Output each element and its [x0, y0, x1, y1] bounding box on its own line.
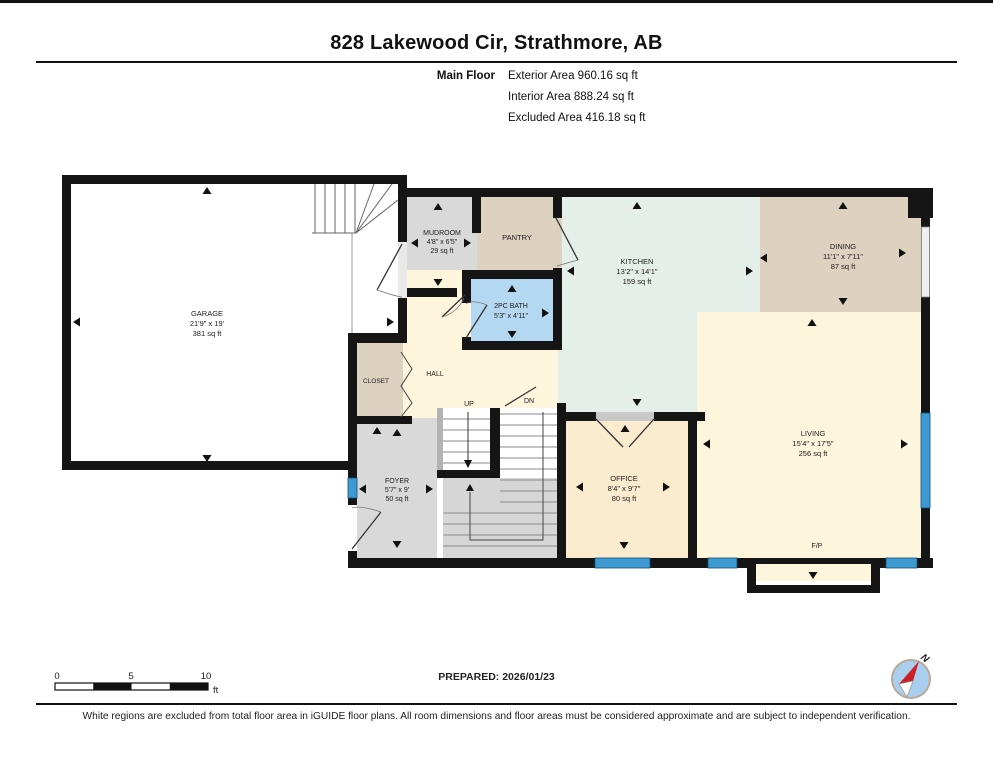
living-area: 256 sq ft	[799, 449, 829, 458]
kitchen-label: KITCHEN	[621, 257, 654, 266]
wall	[348, 416, 412, 424]
footer-divider	[36, 703, 957, 705]
office-door-header	[596, 412, 654, 421]
kitchen-dims: 13'2" x 14'1"	[616, 267, 657, 276]
pantry-label: PANTRY	[502, 233, 532, 242]
scale-unit: ft	[213, 685, 219, 696]
wall	[398, 298, 407, 343]
dining-label: DINING	[830, 242, 856, 251]
wall	[62, 175, 407, 184]
mudroom-label: MUDROOM	[423, 230, 461, 237]
wall	[557, 403, 566, 558]
room-kitchen	[558, 193, 760, 312]
garage-label: GARAGE	[191, 309, 223, 318]
wall	[654, 412, 705, 421]
wall	[62, 461, 357, 470]
room-fills	[66, 179, 923, 558]
mudroom-dims: 4'8" x 6'5"	[427, 239, 458, 246]
office-label: OFFICE	[610, 474, 638, 483]
wall	[62, 175, 71, 470]
wall	[407, 288, 457, 297]
kitchen-area: 159 sq ft	[623, 277, 653, 286]
bath-label: 2PC BATH	[494, 303, 528, 310]
foyer-area: 50 sq ft	[386, 496, 409, 503]
floorplan-drawing: GARAGE 21'9" x 19' 381 sq ft MUDROOM 4'8…	[0, 0, 993, 768]
wall	[472, 188, 481, 233]
foyer-label: FOYER	[385, 478, 409, 485]
mudroom-area: 29 sq ft	[431, 248, 454, 255]
fireplace-label: F/P	[812, 543, 823, 550]
door-gap-garage-mudroom	[398, 242, 407, 298]
wall	[562, 412, 596, 421]
window	[886, 558, 917, 568]
wall	[553, 268, 562, 350]
wall	[462, 270, 471, 303]
prepared-date: PREPARED: 2026/01/23	[0, 671, 993, 683]
stairs-up-label: UP	[464, 401, 474, 408]
hall-label: HALL	[426, 371, 444, 378]
dining-dims: 11'1" x 7'11"	[823, 252, 863, 261]
window	[921, 413, 930, 508]
wall	[553, 188, 562, 218]
living-dims: 15'4" x 17'5"	[792, 439, 833, 448]
dining-area: 87 sq ft	[831, 262, 857, 271]
bath-dims: 5'3" x 4'11"	[494, 313, 528, 320]
wall	[747, 585, 880, 593]
window-dining	[922, 227, 930, 297]
stair-half-wall	[437, 408, 443, 470]
room-kitchen-lower	[558, 312, 697, 416]
office-area: 80 sq ft	[612, 494, 638, 503]
stairs-dn-label: DN	[524, 398, 534, 405]
window	[708, 558, 737, 568]
living-label: LIVING	[801, 429, 826, 438]
wall	[462, 270, 562, 279]
foyer-dims: 5'7" x 9'	[385, 487, 409, 494]
window	[595, 558, 650, 568]
garage-dims: 21'9" x 19'	[190, 319, 225, 328]
wall	[688, 412, 697, 558]
wall	[462, 341, 562, 350]
scale-bar-segment	[93, 683, 131, 690]
window	[348, 478, 357, 498]
disclaimer-text: White regions are excluded from total fl…	[0, 711, 993, 722]
garage-area: 381 sq ft	[193, 329, 223, 338]
closet-label: CLOSET	[363, 378, 389, 385]
wall	[490, 408, 500, 478]
scale-bar-segment	[170, 683, 208, 690]
wall	[437, 470, 500, 478]
office-dims: 8'4" x 9'7"	[608, 484, 641, 493]
